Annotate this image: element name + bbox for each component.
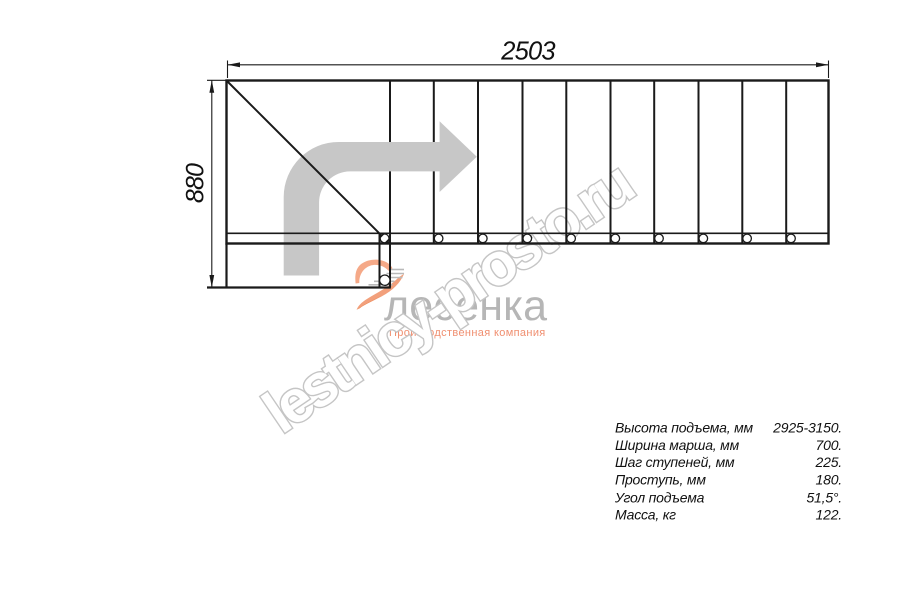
svg-text:Высота подъема, мм: Высота подъема, мм xyxy=(615,420,754,436)
svg-text:700.: 700. xyxy=(816,437,842,453)
svg-text:880: 880 xyxy=(182,163,210,203)
svg-text:51,5°.: 51,5°. xyxy=(806,489,842,505)
svg-text:2503: 2503 xyxy=(500,38,555,66)
svg-text:122.: 122. xyxy=(816,507,842,523)
svg-text:2925-3150.: 2925-3150. xyxy=(772,420,842,436)
svg-text:Угол подъема: Угол подъема xyxy=(614,489,705,505)
svg-text:Шаг ступеней, мм: Шаг ступеней, мм xyxy=(615,454,735,470)
svg-text:Масса, кг: Масса, кг xyxy=(615,507,676,523)
svg-text:Проступь, мм: Проступь, мм xyxy=(615,471,706,487)
svg-text:180.: 180. xyxy=(816,471,842,487)
svg-text:225.: 225. xyxy=(815,454,842,470)
svg-text:Ширина марша, мм: Ширина марша, мм xyxy=(615,437,740,453)
